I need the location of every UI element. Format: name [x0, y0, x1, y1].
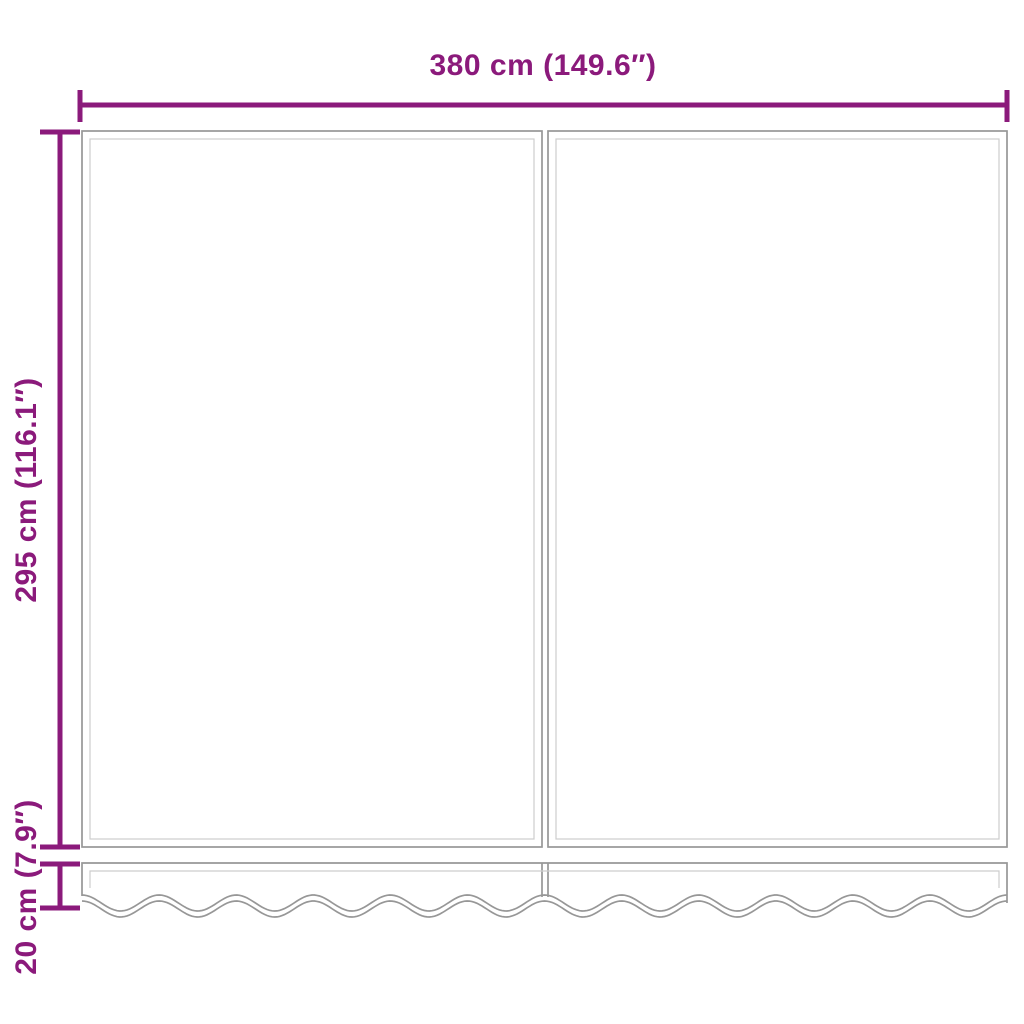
dimension-diagram: 380 cm (149.6″) 295 cm (116.1″) 20 cm (7… — [0, 0, 1024, 1024]
fabric-hem-group — [90, 139, 999, 888]
valance-hem — [90, 871, 999, 888]
diagram-canvas — [0, 0, 1024, 1024]
fabric-outline-group — [82, 131, 1007, 917]
valance-wave-inner — [82, 901, 1007, 917]
fabric-panel-right — [548, 131, 1007, 847]
valance-dimension-label: 20 cm (7.9″) — [10, 799, 44, 974]
valance-wave-outer — [82, 895, 1007, 911]
fabric-panel-left — [82, 131, 542, 847]
width-dimension-label: 380 cm (149.6″) — [429, 49, 656, 83]
panel-left-hem — [90, 139, 534, 839]
dimension-lines-group — [40, 90, 1007, 908]
panel-right-hem — [556, 139, 999, 839]
height-dimension-label: 295 cm (116.1″) — [10, 377, 44, 602]
valance-top-and-sides — [82, 863, 1007, 903]
